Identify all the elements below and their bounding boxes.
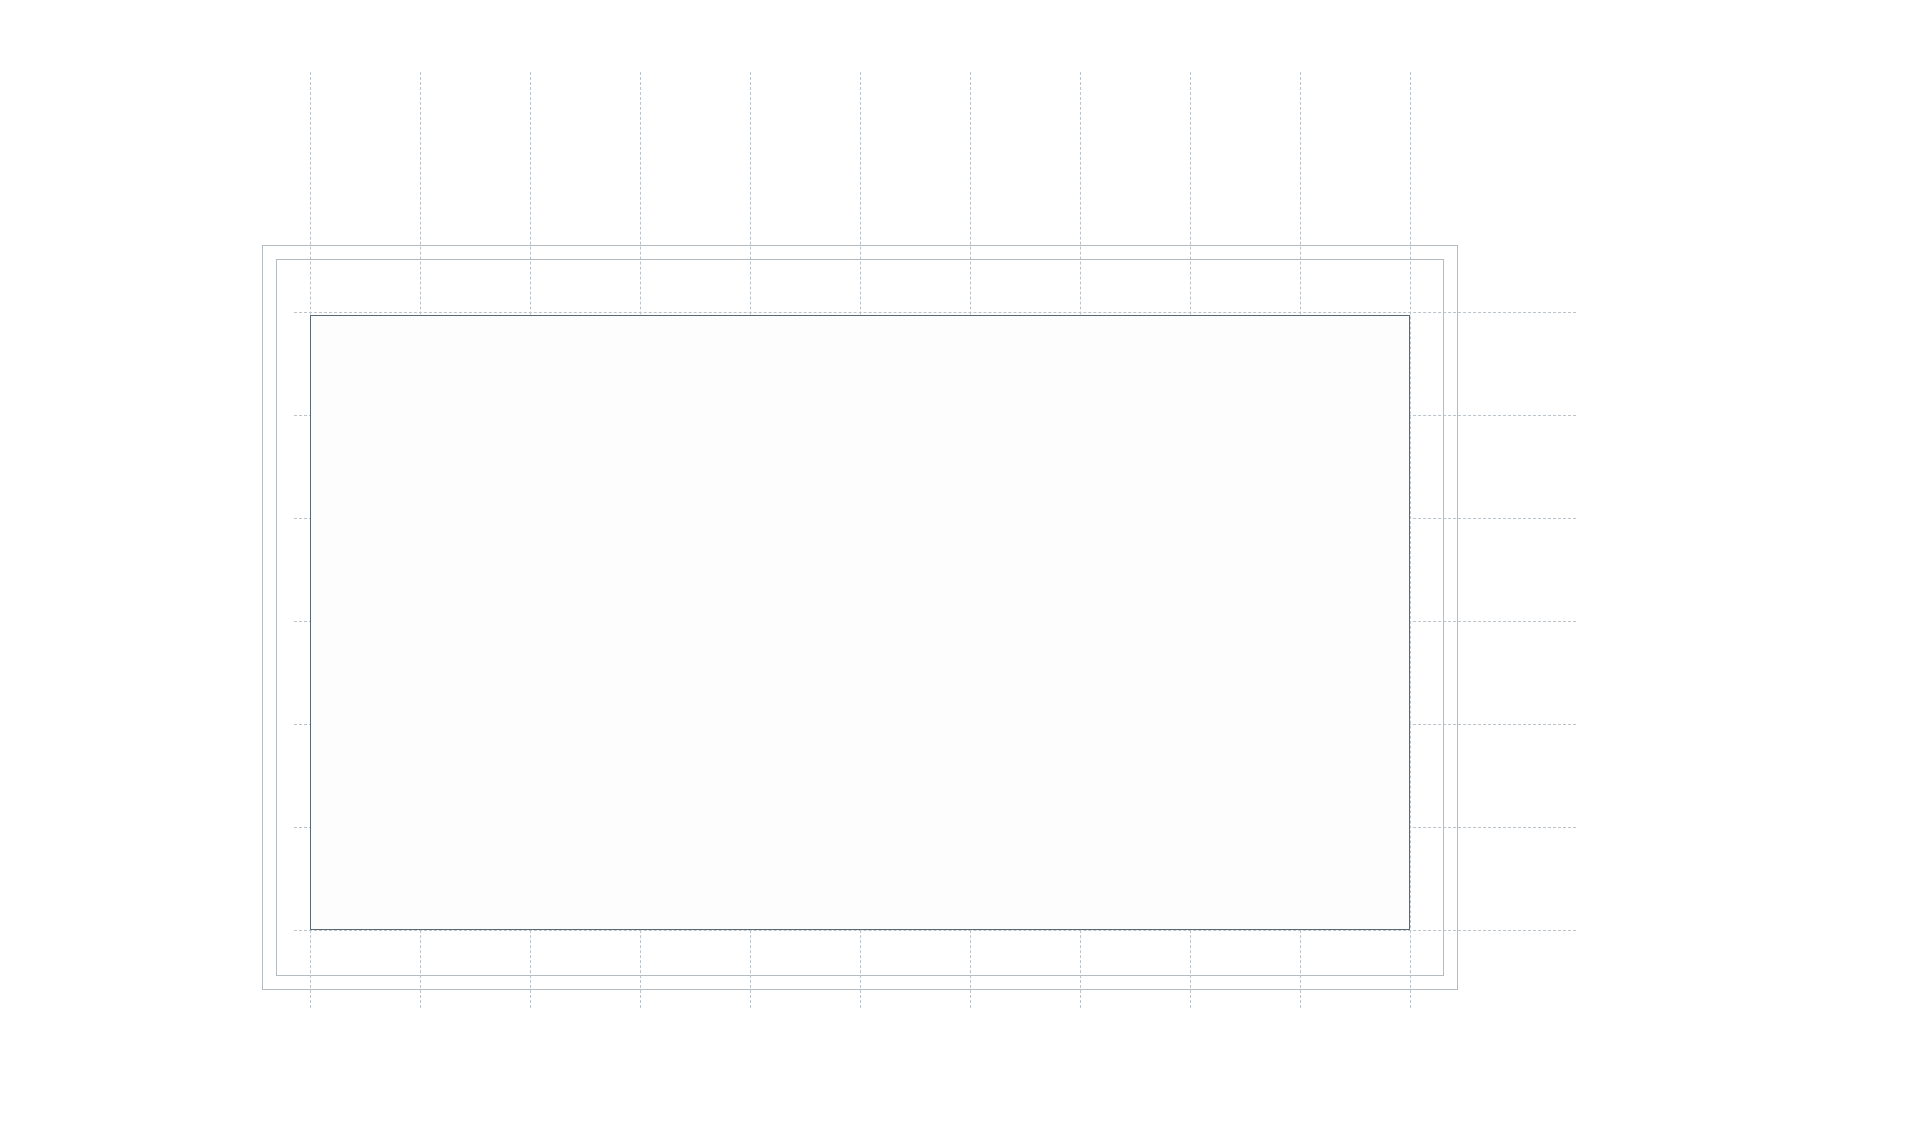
zone-building xyxy=(310,315,1410,930)
floorplan-sheet xyxy=(0,0,1919,1123)
